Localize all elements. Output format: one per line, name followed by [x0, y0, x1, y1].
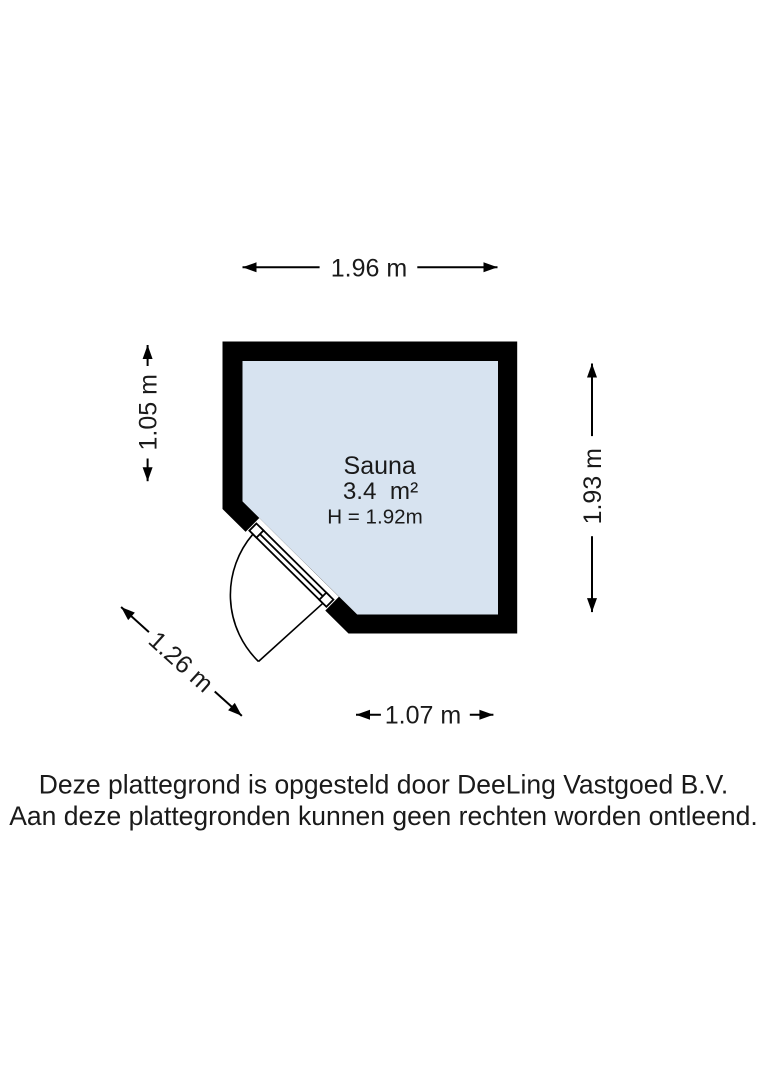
svg-text:Sauna: Sauna — [344, 452, 416, 480]
svg-text:1.05 m: 1.05 m — [135, 374, 163, 450]
svg-text:1.07 m: 1.07 m — [385, 702, 461, 730]
svg-text:Aan deze plattegronden kunnen: Aan deze plattegronden kunnen geen recht… — [9, 801, 757, 831]
svg-text:1.96 m: 1.96 m — [331, 254, 407, 282]
svg-text:3.4 m²: 3.4 m² — [343, 478, 418, 505]
svg-text:1.93 m: 1.93 m — [579, 448, 607, 524]
svg-text:Deze plattegrond is opgesteld: Deze plattegrond is opgesteld door DeeLi… — [39, 770, 728, 800]
svg-text:H = 1.92m: H = 1.92m — [327, 505, 423, 528]
